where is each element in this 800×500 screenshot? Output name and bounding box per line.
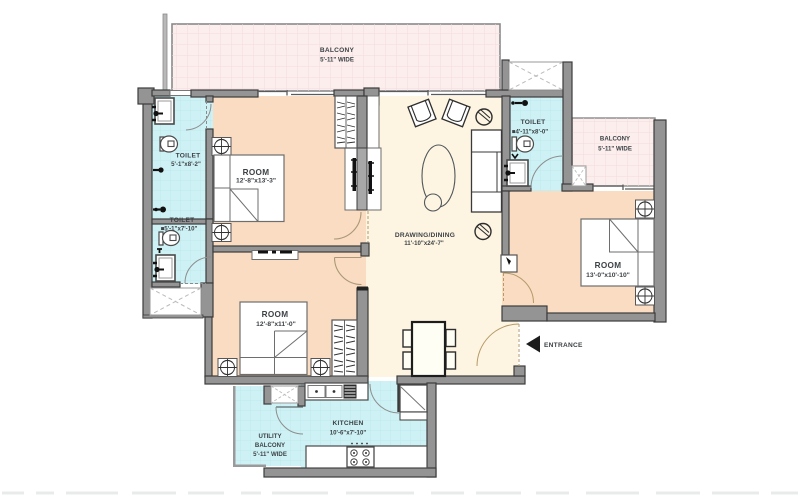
svg-text:ROOM: ROOM	[243, 168, 270, 177]
svg-text:10'-6"x7'-10": 10'-6"x7'-10"	[330, 430, 367, 437]
svg-text:TOILET: TOILET	[176, 153, 201, 160]
svg-text:ROOM: ROOM	[595, 261, 622, 270]
svg-text:BALCONY: BALCONY	[320, 47, 355, 54]
svg-text:5'-11" WIDE: 5'-11" WIDE	[320, 57, 354, 64]
svg-text:12'-8"x13'-3": 12'-8"x13'-3"	[236, 178, 276, 185]
svg-text:■4'-11"x8'-0": ■4'-11"x8'-0"	[512, 129, 549, 136]
svg-text:12'-8"x11'-0": 12'-8"x11'-0"	[256, 321, 296, 328]
svg-text:BALCONY: BALCONY	[600, 136, 630, 143]
svg-text:5'-11" WIDE: 5'-11" WIDE	[253, 451, 287, 458]
svg-text:UTILITY: UTILITY	[258, 433, 281, 440]
svg-text:DRAWING/DINING: DRAWING/DINING	[395, 232, 455, 239]
svg-text:ENTRANCE: ENTRANCE	[544, 342, 583, 349]
svg-text:BALCONY: BALCONY	[255, 442, 285, 449]
svg-text:11'-10"x24'-7": 11'-10"x24'-7"	[404, 240, 444, 247]
svg-text:5'-1"x8'-2": 5'-1"x8'-2"	[171, 161, 201, 168]
svg-text:KITCHEN: KITCHEN	[332, 420, 363, 427]
svg-text:TOILET: TOILET	[170, 217, 195, 224]
svg-text:TOILET: TOILET	[521, 119, 546, 126]
svg-text:5'-11" WIDE: 5'-11" WIDE	[598, 146, 632, 153]
svg-text:ROOM: ROOM	[262, 310, 289, 319]
svg-text:13'-0"x10'-10": 13'-0"x10'-10"	[586, 272, 630, 279]
